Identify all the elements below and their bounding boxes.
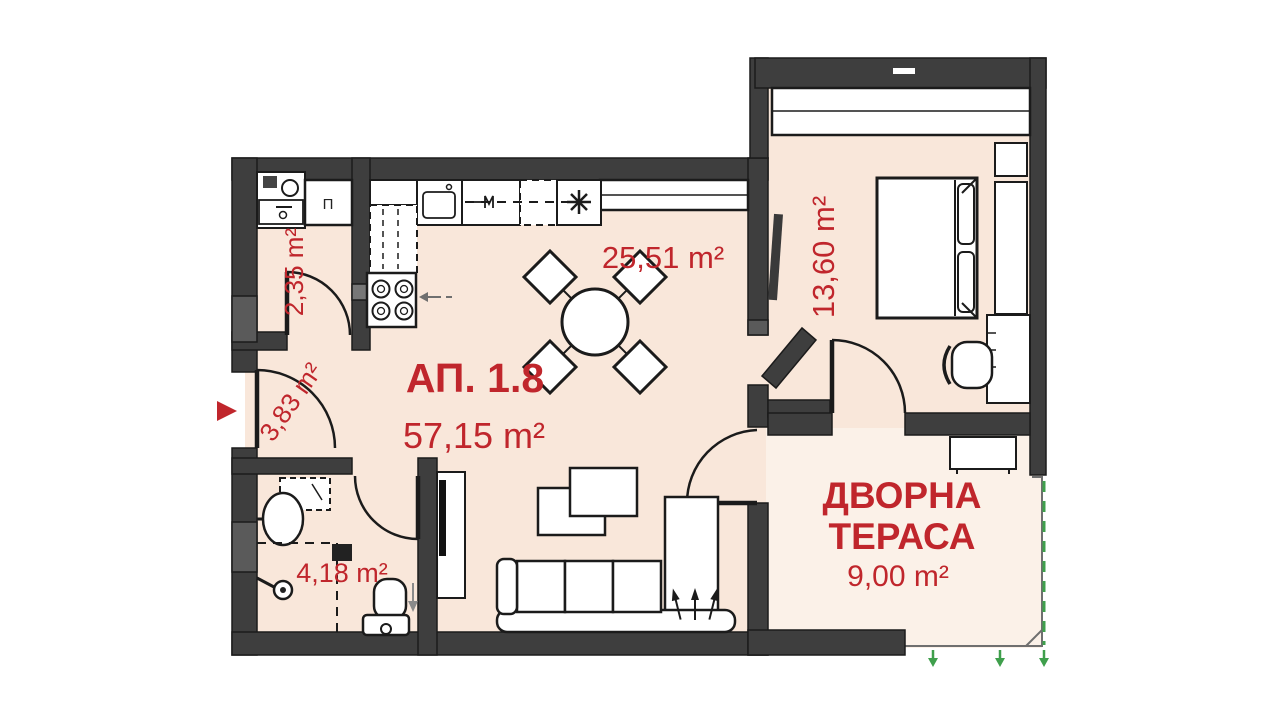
garden-arrow-icon [928, 650, 938, 667]
service-niche [257, 172, 305, 228]
wall-bedroom-bottom-left [768, 413, 832, 435]
entrance-arrow-icon [217, 401, 237, 421]
garden-arrow-icon [995, 650, 1005, 667]
terrace-furniture [950, 437, 1016, 474]
pillow [958, 184, 974, 244]
closet-label: П [323, 196, 334, 213]
living-window [600, 180, 748, 210]
bedroom-area-label: 13,60 m² [806, 196, 841, 318]
wall-top-main [232, 158, 768, 180]
wall-divider-stub [748, 385, 768, 427]
kitchen-tall-unit [370, 205, 417, 273]
garden-arrows [928, 650, 1049, 667]
terrace-table [950, 437, 1016, 469]
wall-terrace-bottom [748, 630, 905, 655]
terrace-name-line1: ДВОРНА [822, 475, 981, 516]
bed [877, 178, 977, 318]
garden-arrow-icon [1039, 650, 1049, 667]
wall-bedroom-bottom-right [905, 413, 1030, 435]
floor-plan: П [0, 0, 1280, 720]
wall-bedroom-right [1030, 58, 1046, 475]
boiler-tank-icon [282, 180, 298, 196]
dining-table [562, 289, 628, 355]
apartment-area-label: 57,15 m² [403, 415, 545, 456]
desk [987, 315, 1030, 403]
wall-segment-light [232, 522, 257, 572]
wall-bathroom-top [232, 458, 352, 474]
pillow [958, 252, 974, 312]
boiler-icon [263, 176, 277, 188]
sofa-armrest [497, 559, 517, 614]
wall-segment-light [748, 320, 768, 335]
sofa-base [497, 610, 735, 632]
terrace-area-label: 9,00 m² [847, 560, 949, 593]
kitchen-cabinet [370, 180, 417, 205]
side-unit [995, 182, 1027, 314]
wall-divider-upper [748, 158, 768, 335]
wall-segment-light [232, 296, 257, 342]
closet: П [305, 180, 352, 225]
corridor-area-label: 2,35 m² [279, 228, 309, 316]
terrace-name-line2: ТЕРАСА [828, 516, 975, 557]
wall-bottom-main [232, 632, 768, 655]
living-area-label: 25,51 m² [602, 240, 724, 275]
sofa-cushions [517, 561, 661, 612]
nightstand [995, 143, 1027, 176]
apartment-label: АП. 1.8 [406, 355, 544, 401]
wall-break-mark [893, 68, 915, 74]
tv-icon [439, 480, 446, 556]
tv-unit [437, 472, 465, 598]
wall-bathroom-right [418, 458, 437, 655]
bathroom-area-label: 4,18 m² [296, 558, 388, 588]
floor-plan-page: П [0, 0, 1280, 720]
